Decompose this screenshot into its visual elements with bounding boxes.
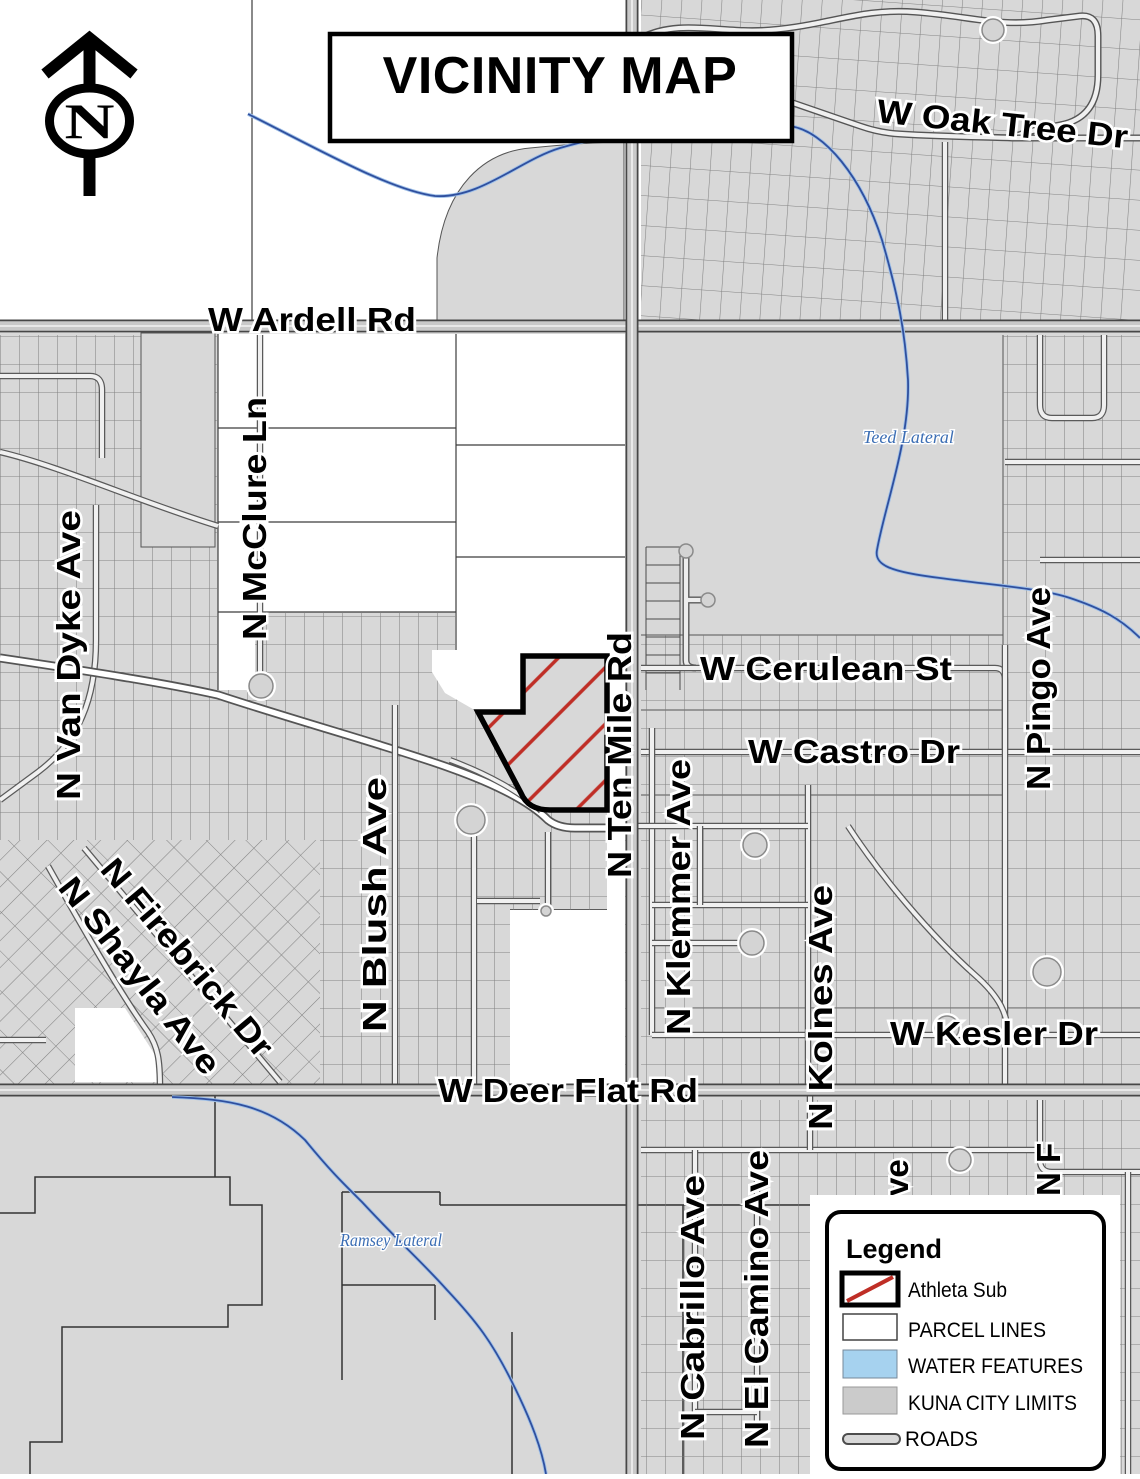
svg-text:Ramsey Lateral: Ramsey Lateral (339, 1230, 442, 1250)
svg-text:N Van Dyke Ave: N Van Dyke Ave (50, 510, 87, 800)
svg-text:N Blush Ave: N Blush Ave (356, 777, 393, 1032)
svg-text:VICINITY MAP: VICINITY MAP (383, 47, 738, 105)
svg-text:N: N (65, 93, 115, 149)
svg-text:N F: N F (1030, 1143, 1067, 1196)
svg-text:W Ardell Rd: W Ardell Rd (208, 301, 416, 338)
svg-text:N Kolnes Ave: N Kolnes Ave (802, 885, 839, 1130)
svg-text:W Kesler Dr: W Kesler Dr (890, 1015, 1098, 1052)
svg-text:N Ten Mile Rd: N Ten Mile Rd (601, 632, 638, 878)
svg-text:KUNA CITY LIMITS: KUNA CITY LIMITS (908, 1392, 1077, 1415)
svg-text:Teed Lateral: Teed Lateral (863, 427, 954, 447)
svg-text:Athleta Sub: Athleta Sub (908, 1279, 1007, 1302)
svg-text:W Cerulean St: W Cerulean St (700, 650, 952, 687)
svg-text:ve: ve (878, 1159, 915, 1196)
svg-text:W Deer Flat Rd: W Deer Flat Rd (438, 1072, 698, 1109)
svg-text:WATER FEATURES: WATER FEATURES (908, 1355, 1083, 1378)
svg-text:ROADS: ROADS (905, 1428, 978, 1451)
svg-text:N Cabrillo Ave: N Cabrillo Ave (674, 1175, 711, 1440)
svg-text:N McClure Ln: N McClure Ln (236, 397, 273, 640)
svg-text:W Castro Dr: W Castro Dr (748, 733, 960, 770)
svg-text:PARCEL LINES: PARCEL LINES (908, 1319, 1046, 1342)
svg-text:N Pingo Ave: N Pingo Ave (1020, 587, 1057, 790)
svg-text:N Klemmer Ave: N Klemmer Ave (660, 759, 697, 1035)
svg-text:N El Camino Ave: N El Camino Ave (738, 1150, 775, 1448)
svg-text:Legend: Legend (846, 1234, 942, 1264)
